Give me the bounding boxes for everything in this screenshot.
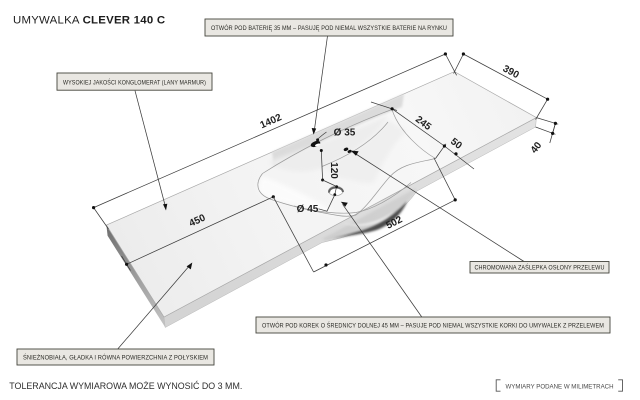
svg-text:40: 40	[529, 140, 545, 156]
svg-text:CHROMOWANA ZAŚLEPKA OSŁONY PRZ: CHROMOWANA ZAŚLEPKA OSŁONY PRZELEWU	[475, 263, 605, 272]
svg-text:TOLERANCJA WYMIAROWA MOŻE WYNO: TOLERANCJA WYMIAROWA MOŻE WYNOSIĆ DO 3 M…	[9, 381, 242, 391]
svg-text:OTWÓR POD KOREK O ŚREDNICY DOL: OTWÓR POD KOREK O ŚREDNICY DOLNEJ 45 MM …	[262, 321, 604, 330]
svg-text:390: 390	[501, 64, 521, 82]
svg-text:WYMIARY PODANE W MILIMETRACH: WYMIARY PODANE W MILIMETRACH	[506, 383, 614, 390]
svg-text:OTWÓR POD BATERIĘ 35 MM – PASU: OTWÓR POD BATERIĘ 35 MM – PASUJĘ POD NIE…	[211, 23, 447, 32]
svg-text:UMYWALKA CLEVER 140 C: UMYWALKA CLEVER 140 C	[13, 15, 165, 27]
svg-text:WYSOKIEJ JAKOŚCI KONGLOMERAT (: WYSOKIEJ JAKOŚCI KONGLOMERAT (LANY MARMU…	[63, 77, 206, 86]
svg-text:ŚNIEŻNOBIAŁA, GŁADKA I RÓWNA P: ŚNIEŻNOBIAŁA, GŁADKA I RÓWNA POWIERZCHNI…	[23, 353, 208, 362]
svg-text:120: 120	[328, 162, 339, 179]
svg-text:1402: 1402	[259, 112, 284, 131]
svg-text:Ø 35: Ø 35	[334, 128, 356, 139]
svg-text:Ø 45: Ø 45	[297, 204, 319, 215]
